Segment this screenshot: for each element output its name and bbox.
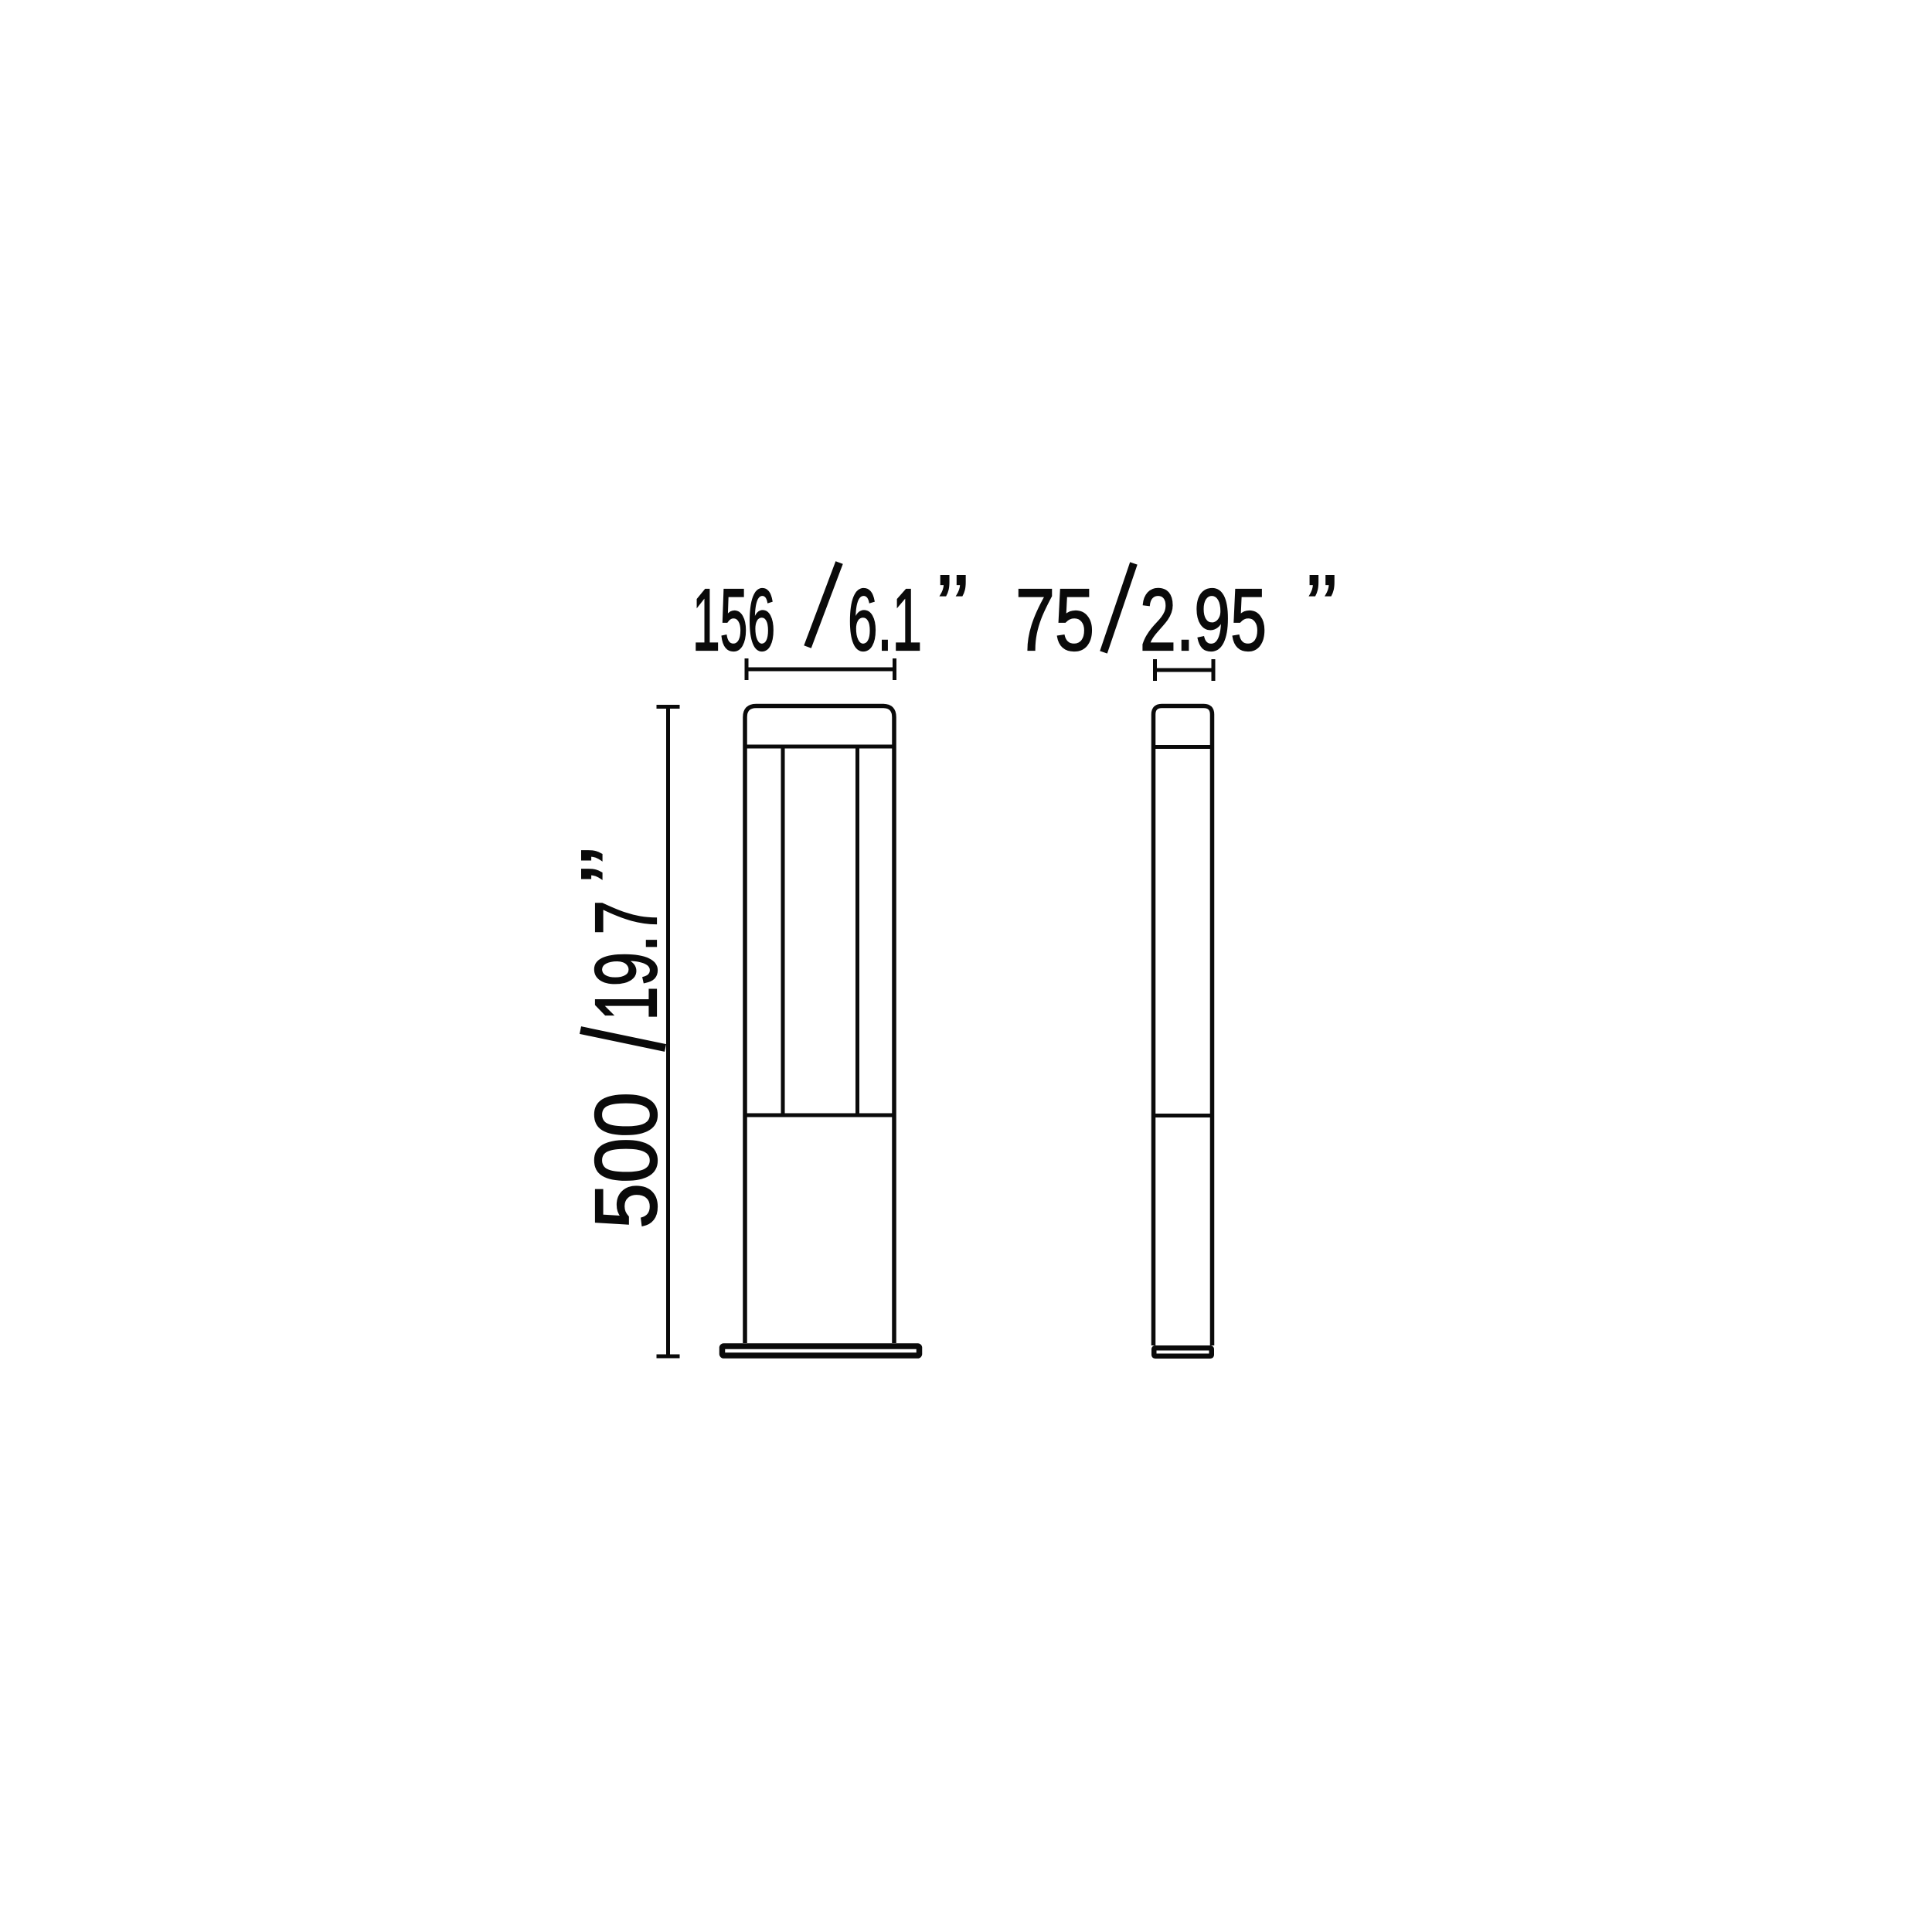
- svg-text:2.95: 2.95: [1140, 571, 1267, 668]
- svg-text:’’: ’’: [936, 557, 970, 655]
- svg-text:’’: ’’: [563, 845, 661, 884]
- svg-text:’’: ’’: [1305, 557, 1338, 655]
- svg-text:75: 75: [1015, 571, 1094, 668]
- svg-text:6.1: 6.1: [848, 571, 922, 668]
- svg-text:156: 156: [692, 571, 775, 668]
- svg-text:500: 500: [577, 1092, 675, 1229]
- svg-text:19.7: 19.7: [577, 900, 675, 1021]
